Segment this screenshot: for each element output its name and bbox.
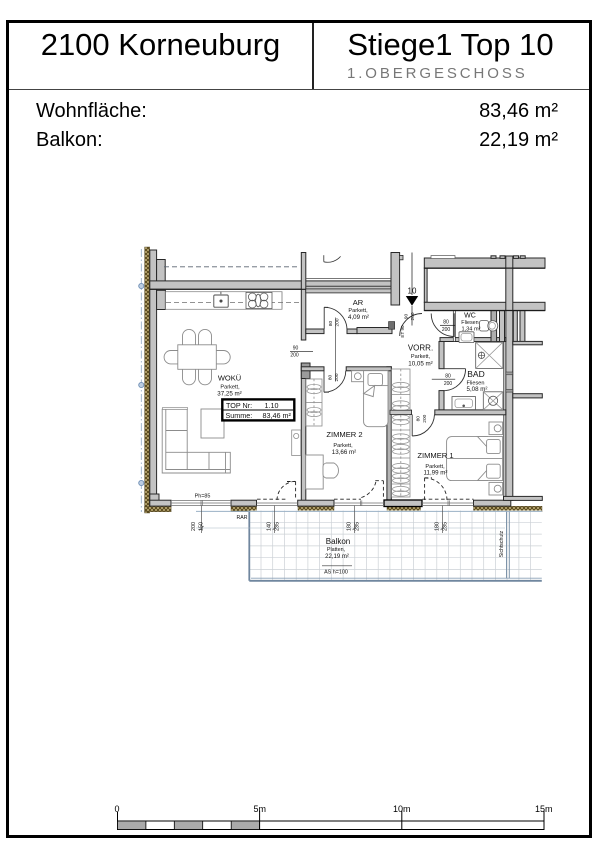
svg-text:1.10: 1.10 xyxy=(265,401,279,410)
svg-text:Sichtschutz: Sichtschutz xyxy=(499,530,505,557)
svg-text:80: 80 xyxy=(415,416,421,422)
svg-text:80: 80 xyxy=(443,320,449,326)
svg-text:RAR: RAR xyxy=(237,515,248,521)
svg-text:Ph=85: Ph=85 xyxy=(195,494,211,500)
svg-text:ZIMMER 1: ZIMMER 1 xyxy=(417,451,453,460)
svg-text:22,19 m²: 22,19 m² xyxy=(325,554,349,560)
svg-text:15m: 15m xyxy=(535,804,553,814)
svg-text:150: 150 xyxy=(199,522,205,531)
svg-text:200: 200 xyxy=(290,353,299,359)
svg-text:0: 0 xyxy=(115,804,120,814)
svg-text:235: 235 xyxy=(443,522,449,531)
svg-text:235: 235 xyxy=(355,522,361,531)
svg-text:10: 10 xyxy=(408,287,417,296)
svg-text:90: 90 xyxy=(404,314,410,320)
svg-text:WC: WC xyxy=(464,312,476,319)
svg-text:ET 90: ET 90 xyxy=(400,325,405,338)
svg-text:11,99 m²: 11,99 m² xyxy=(424,469,448,476)
svg-text:80: 80 xyxy=(445,373,451,379)
svg-text:TOP Nr:: TOP Nr: xyxy=(226,401,252,410)
svg-text:5,08 m²: 5,08 m² xyxy=(467,386,488,393)
svg-text:200: 200 xyxy=(334,373,340,381)
svg-text:13,66 m²: 13,66 m² xyxy=(332,449,356,456)
svg-text:Fliesen: Fliesen xyxy=(461,320,478,326)
svg-text:WOKÜ: WOKÜ xyxy=(218,374,241,383)
svg-text:80: 80 xyxy=(328,321,334,327)
svg-text:200: 200 xyxy=(410,312,416,320)
svg-text:VORR.: VORR. xyxy=(408,343,433,352)
svg-text:200: 200 xyxy=(422,414,428,422)
svg-text:180: 180 xyxy=(435,522,441,531)
svg-text:Parkett,: Parkett, xyxy=(220,384,240,390)
svg-text:200: 200 xyxy=(334,318,340,326)
svg-text:Balkon: Balkon xyxy=(326,537,350,546)
svg-text:10,05 m²: 10,05 m² xyxy=(408,361,432,368)
svg-text:Parkett,: Parkett, xyxy=(411,354,431,360)
svg-text:ZIMMER 2: ZIMMER 2 xyxy=(326,430,362,439)
svg-text:BAD: BAD xyxy=(467,369,484,379)
svg-text:90: 90 xyxy=(293,346,299,352)
svg-text:83,46 m²: 83,46 m² xyxy=(263,411,292,420)
svg-text:Platten,: Platten, xyxy=(327,547,346,553)
svg-text:AR: AR xyxy=(353,298,364,307)
svg-text:200: 200 xyxy=(191,522,197,531)
svg-text:4,09 m²: 4,09 m² xyxy=(348,314,369,321)
svg-text:180: 180 xyxy=(347,522,353,531)
svg-text:140: 140 xyxy=(267,522,273,531)
svg-text:AS h=100: AS h=100 xyxy=(324,569,348,575)
svg-text:80: 80 xyxy=(328,375,334,381)
svg-text:1,34 m²: 1,34 m² xyxy=(462,326,481,332)
svg-text:Summe:: Summe: xyxy=(226,411,253,420)
svg-text:37,25 m²: 37,25 m² xyxy=(217,391,241,398)
svg-text:235: 235 xyxy=(275,522,281,531)
svg-text:200: 200 xyxy=(442,327,451,333)
svg-text:5m: 5m xyxy=(254,804,267,814)
svg-text:200: 200 xyxy=(444,381,453,387)
svg-text:10m: 10m xyxy=(393,804,411,814)
